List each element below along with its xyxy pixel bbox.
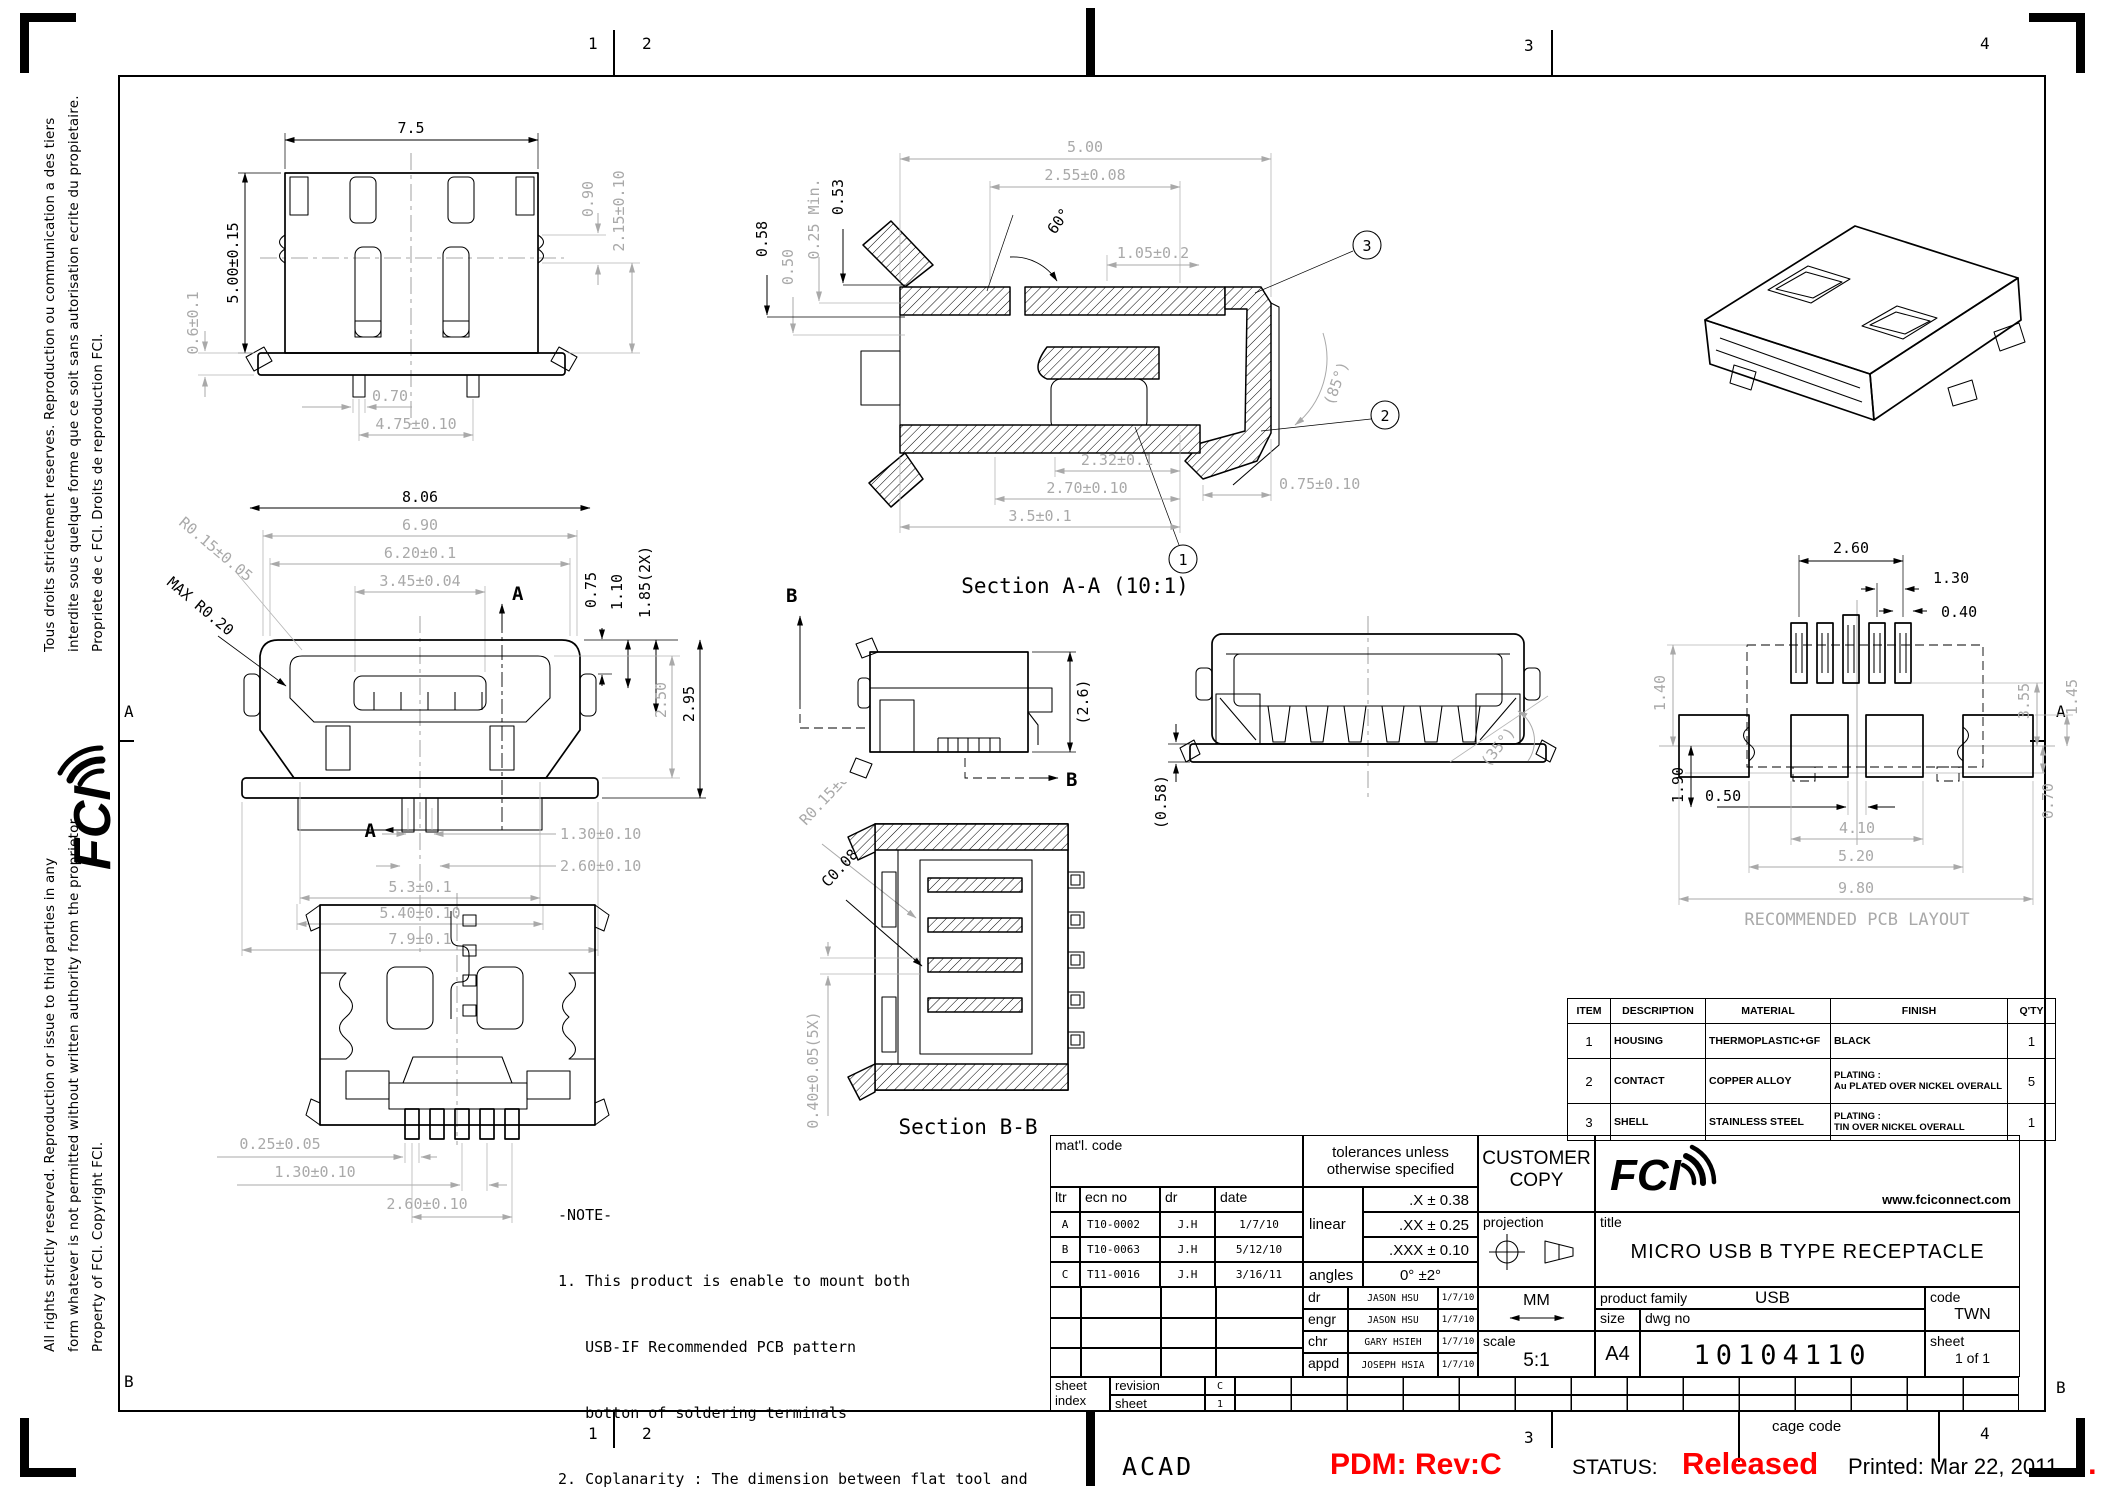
cage-code-label: cage code [1772,1418,1841,1435]
sign-date: 1/7/10 [1438,1353,1478,1377]
item-table: ITEM DESCRIPTION MATERIAL FINISH Q'TY 1 … [1567,998,2056,1141]
fci-logo: FCI [1610,1142,1730,1204]
zone-tick [1551,30,1553,75]
website-text: www.fciconnect.com [1882,1192,2011,1207]
note-line: botton of soldering terminals [558,1402,1127,1424]
code-cell: code TWN [1925,1287,2020,1331]
dim-label: 0.25±0.05 [239,1135,320,1153]
scale-value: 5:1 [1479,1350,1594,1372]
dim-label: 1.30 [1933,569,1969,587]
double-arrow-icon [1505,1313,1569,1323]
tol-xx: .XX ± 0.25 [1363,1212,1478,1237]
trim-mark [2076,13,2085,73]
view-caption: RECOMMENDED PCB LAYOUT [1744,910,1969,930]
dim-label: 1.90 [1669,767,1687,803]
note-line: 2. Coplanarity : The dimension between f… [558,1468,1127,1488]
rev-dr: J.H [1160,1237,1215,1262]
side-view: B (2.6) B [770,560,1105,810]
balloon: 2 [1380,407,1389,425]
rev-date: 5/12/10 [1215,1237,1303,1262]
product-family-value: USB [1755,1288,1790,1307]
sign-name: JASON HSU [1348,1309,1438,1331]
dim-label: 3.5±0.1 [1008,507,1071,525]
size-label: size [1596,1309,1629,1327]
pdm-rev-text: PDM: Rev:C [1330,1448,1502,1482]
rev-ltr: A [1050,1212,1080,1237]
dim-label: 1.30±0.10 [274,1163,355,1181]
rev-date: 3/16/11 [1215,1262,1303,1287]
sign-name: JOSEPH HSIA [1348,1353,1438,1377]
balloon: 3 [1362,237,1371,255]
pcb-layout-view: 2.60 1.30 0.40 1.40 1.90 0.50 3.55 1.45 … [1645,505,2095,935]
customer-copy-line: COPY [1479,1170,1594,1192]
col-header: ITEM [1568,999,1611,1024]
dim-label: 0.75 [582,572,600,608]
tolerances-header: tolerances unless otherwise specified [1303,1135,1478,1187]
zone-divider-thick [1086,8,1095,75]
dim-label: 8.06 [402,488,438,506]
trim-mark [20,1418,29,1477]
tol-line: tolerances unless [1304,1144,1477,1161]
dwg-label-cell: dwg no [1640,1309,1925,1331]
dim-label: 2.95 [680,686,698,722]
col-header: MATERIAL [1706,999,1831,1024]
sign-role: chr [1303,1331,1348,1353]
matl-code-cell: mat'l. code [1050,1135,1303,1187]
note-line: USB-IF Recommended PCB pattern [558,1336,1127,1358]
product-family-label: product family [1596,1289,1691,1307]
legal-text-fr: Tous droits strictement reserves. Reprod… [38,92,110,652]
section-marker: B [786,585,797,607]
dim-label: (2.6) [1074,679,1092,724]
dim-label: 7.5 [397,119,424,137]
rev-date: 1/7/10 [1215,1212,1303,1237]
units-label: MM [1479,1288,1594,1310]
customer-copy-cell: CUSTOMER COPY [1478,1135,1595,1212]
section-marker: A [512,583,524,605]
angles-value: 0° ±2° [1363,1262,1478,1287]
table-row: 1 HOUSING THERMO­PLASTIC+GF BLACK 1 [1568,1024,2056,1059]
dwg-no-cell: 10104110 [1640,1331,1925,1377]
legal-line: form whatever is not permitted without w… [62,822,86,1352]
title-cell: title MICRO USB B TYPE RECEPTACLE [1595,1212,2020,1287]
size-label-cell: size [1595,1309,1640,1331]
trim-mark [20,13,29,73]
dim-label: 1.05±0.2 [1117,244,1189,262]
dim-label: R0.15±0.05 [796,782,871,829]
table-row: 2 CONTACT COPPER ALLOY PLATING : Au PLAT… [1568,1059,2056,1104]
sheet-value: 1 of 1 [1926,1350,2019,1366]
dim-label: 2.55±0.08 [1044,166,1125,184]
drawing-title: MICRO USB B TYPE RECEPTACLE [1596,1241,2019,1264]
zone-col-label: 4 [1980,34,1990,53]
scale-label: scale [1479,1332,1594,1350]
footer-period: . [2088,1446,2097,1482]
col-header: FINISH [1831,999,2008,1024]
dim-label: 2.60 [1833,539,1869,557]
finish-line: PLATING : [1834,1070,2004,1081]
cell-qty: 5 [2008,1059,2056,1104]
cell-desc: HOUSING [1611,1024,1706,1059]
title-label: title [1596,1213,2019,1231]
revision-strip [1235,1395,2019,1412]
finish-line: Au PLATED OVER NICKEL OVERALL [1834,1081,2004,1092]
col-header: Q'TY [2008,999,2056,1024]
cell-item: 1 [1568,1024,1611,1059]
sign-role: appd [1303,1353,1348,1377]
zone-col-label: 3 [1524,36,1534,55]
dim-label: 2.32±0.1 [1081,451,1153,469]
zone-col-label: 3 [1524,1428,1534,1447]
status-label: STATUS: [1572,1456,1658,1480]
zone-tick [613,30,615,75]
zone-row-label: A [124,702,134,721]
dim-label: R0.15±0.05 [175,513,256,585]
dwg-no-label: dwg no [1641,1309,1694,1327]
dim-label: 3.55 [2015,683,2033,719]
dim-label: 1.40 [1651,675,1669,711]
revision-row-value: C [1205,1377,1235,1395]
dim-label: 0.50 [779,249,797,285]
dim-label: 0.40 [1941,603,1977,621]
units-cell: MM [1478,1287,1595,1331]
sign-date: 1/7/10 [1438,1309,1478,1331]
drawing-sheet: 1 2 3 4 1 2 3 4 A B A B Tous droits stri… [0,0,2105,1488]
dim-label: 1.30±0.10 [560,825,641,843]
dim-label: 3.45±0.04 [379,572,460,590]
dim-label: 2.60±0.10 [560,857,641,875]
dim-label: 60° [1044,205,1074,238]
printed-date: Printed: Mar 22, 2011 [1848,1454,2058,1480]
sheet-index-line: index [1055,1393,1109,1408]
isometric-view [1650,160,2050,445]
code-label: code [1926,1288,2019,1306]
dim-label: 0.70 [2039,783,2057,819]
sheet-row-label: sheet [1110,1395,1205,1412]
zone-col-label: 4 [1980,1424,1990,1443]
dim-label: 0.50 [1705,787,1741,805]
sheet-cell: sheet 1 of 1 [1925,1331,2020,1377]
rev-empty-grid [1050,1287,1303,1377]
dim-label: 5.20 [1838,847,1874,865]
rev-ecn: T11-0016 [1080,1262,1160,1287]
status-value: Released [1682,1446,1818,1482]
dim-label: 5.00 [1067,138,1103,156]
angles-cell: angles [1303,1262,1363,1287]
dim-label: 0.40±0.05(5X) [804,1011,822,1128]
cell-finish: PLATING : Au PLATED OVER NICKEL OVERALL [1831,1059,2008,1104]
cell-item: 2 [1568,1059,1611,1104]
zone-col-label: 2 [642,34,652,53]
legal-line: Tous droits strictement reserves. Reprod… [38,92,62,652]
zone-tick [1551,1412,1553,1448]
sign-role: engr [1303,1309,1348,1331]
rev-ecn: T10-0063 [1080,1237,1160,1262]
logo-cell: FCI www.fciconnect.com [1595,1135,2020,1212]
dim-label: (0.58) [1152,775,1170,828]
notes-title: -NOTE- [558,1204,1127,1226]
sign-role: dr [1303,1287,1348,1309]
tol-xxx: .XXX ± 0.10 [1363,1237,1478,1262]
note-line: 1. This product is enable to mount both [558,1270,1127,1292]
sheet-index-line: sheet [1055,1378,1109,1393]
zone-row-label: B [2056,1378,2066,1397]
dim-label: 4.75±0.10 [375,415,456,433]
fci-side-logo: FCI [52,742,137,872]
dim-label: 6.20±0.1 [384,544,456,562]
legal-text-en: All rights strictly reserved. Reproducti… [38,822,110,1352]
section-aa-view: 5.00 2.55±0.08 60° 1.05±0.2 0.53 0.25 Mi… [755,95,1425,605]
scale-cell: scale 5:1 [1478,1331,1595,1377]
rev-dr: J.H [1160,1262,1215,1287]
rev-ltr: B [1050,1237,1080,1262]
product-family-cell: product family USB [1595,1287,1925,1309]
sheet-label: sheet [1926,1332,2019,1350]
fci-logo-text: FCI [1610,1151,1682,1200]
rev-col-dr: dr [1160,1187,1215,1212]
sheet-row-value: 1 [1205,1395,1235,1412]
col-header: DESCRIPTION [1611,999,1706,1024]
dim-label: 1.10 [608,574,626,610]
dim-label: MAX R0.20 [163,573,237,639]
dim-label: (35°) [1477,724,1519,771]
finish-line: TIN OVER NICKEL OVERALL [1834,1122,2004,1133]
cell-finish: BLACK [1831,1024,2008,1059]
sign-date: 1/7/10 [1438,1331,1478,1353]
rev-dr: J.H [1160,1212,1215,1237]
legal-line: Property of FCI. Copyright FCI. [86,822,110,1352]
zone-col-label: 1 [588,34,598,53]
size-value-cell: A4 [1595,1331,1640,1377]
projection-label: projection [1479,1213,1594,1231]
revision-row-label: revision [1110,1377,1205,1395]
trim-mark [2076,1418,2085,1477]
acad-text: ACAD [1122,1452,1194,1481]
dim-label: 9.80 [1838,879,1874,897]
dim-label: 5.00±0.15 [224,222,242,303]
projection-cell: projection [1478,1212,1595,1287]
zone-row-label: B [124,1372,134,1391]
tol-x: .X ± 0.38 [1363,1187,1478,1212]
tol-line: otherwise specified [1304,1161,1477,1178]
dim-label: 1.45 [2063,679,2081,715]
fci-logo-text: FCI [64,785,122,870]
sign-name: JASON HSU [1348,1287,1438,1309]
dim-label: 2.15±0.10 [610,170,628,251]
dim-label: 1.85(2X) [636,546,654,618]
linear-cell: linear [1303,1187,1363,1262]
dim-label: 0.58 [755,221,771,257]
dim-label: (85°) [1320,359,1352,408]
title-block: mat'l. code ltr ecn no dr date A T10-000… [1050,1135,2020,1412]
legal-line: All rights strictly reserved. Reproducti… [38,822,62,1352]
section-marker: A [365,820,377,842]
sheet-index-cell: sheet index [1050,1377,1110,1412]
dim-label: 0.70 [372,387,408,405]
dim-label: 0.90 [579,181,597,217]
rev-ecn: T10-0002 [1080,1212,1160,1237]
dim-label: 0.25 Min. [805,178,823,259]
legal-line: Propriete de c FCI. Droits de reproducti… [86,92,110,652]
rev-col-ltr: ltr [1050,1187,1080,1212]
notes-block: -NOTE- 1. This product is enable to moun… [558,1160,1127,1488]
dim-label: 0.75±0.10 [1279,475,1360,493]
sign-name: GARY HSIEH [1348,1331,1438,1353]
cell-desc: CONTACT [1611,1059,1706,1104]
dim-label: 4.10 [1839,819,1875,837]
dim-label: 0.53 [829,179,847,215]
back-view: (0.58) (35°) [1150,598,1590,828]
balloon: 1 [1178,551,1187,569]
finish-line: PLATING : [1834,1111,2004,1122]
dim-label: 0.6±0.1 [184,291,202,354]
customer-copy-line: CUSTOMER [1479,1148,1594,1170]
dim-label: 2.70±0.10 [1046,479,1127,497]
dim-label: 2.50 [652,682,670,718]
dim-label: 2.60±0.10 [386,1195,467,1213]
sign-date: 1/7/10 [1438,1287,1478,1309]
cell-qty: 1 [2008,1024,2056,1059]
legal-line: interdite sous quelque forme que ce soit… [62,92,86,652]
revision-strip [1235,1377,2019,1395]
cell-mat: THERMO­PLASTIC+GF [1706,1024,1831,1059]
section-caption: Section B-B [898,1115,1037,1139]
section-bb-view: R0.15±0.05 C0.08Max 0.40±0.05(5X) Sectio… [770,782,1120,1147]
rev-col-ecn: ecn no [1080,1187,1160,1212]
cell-mat: COPPER ALLOY [1706,1059,1831,1104]
rev-col-date: date [1215,1187,1303,1212]
item-table-header: ITEM DESCRIPTION MATERIAL FINISH Q'TY [1568,999,2056,1024]
code-value: TWN [1926,1306,2019,1324]
dim-label: 6.90 [402,516,438,534]
rev-ltr: C [1050,1262,1080,1287]
projection-symbol-icon [1485,1231,1589,1273]
top-view: 7.5 5.00±0.15 0.6±0.1 0.90 2.15±0.10 0.7… [150,95,695,455]
